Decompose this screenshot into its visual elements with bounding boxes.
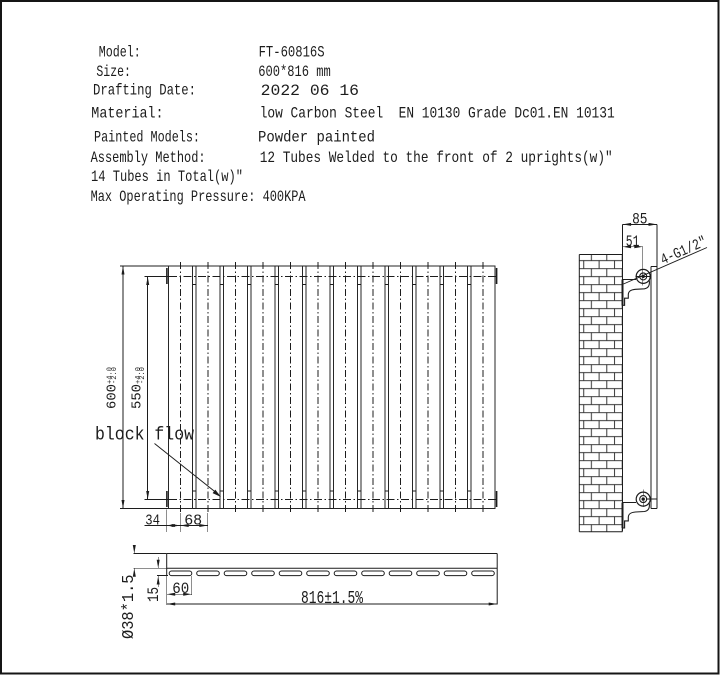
svg-text:low Carbon Steel EN 10130 Gra: low Carbon Steel EN 10130 Grade Dc01.EN … [260, 104, 615, 122]
svg-text:60: 60 [172, 580, 189, 598]
svg-text:14 Tubes in Total(w)″: 14 Tubes in Total(w)″ [91, 168, 243, 186]
svg-text:block flow: block flow [95, 425, 194, 446]
svg-text:68: 68 [184, 513, 202, 530]
svg-text:-2.0: -2.0 [139, 367, 147, 384]
svg-text:Ø38*1.5: Ø38*1.5 [120, 575, 139, 640]
svg-text:550: 550 [131, 384, 146, 409]
svg-text:Powder painted: Powder painted [258, 128, 375, 146]
svg-text:85: 85 [632, 211, 647, 229]
svg-text:51: 51 [626, 233, 640, 251]
svg-text:12 Tubes Welded to the front o: 12 Tubes Welded to the front of 2 uprigh… [260, 149, 613, 167]
svg-text:Drafting Date:: Drafting Date: [93, 82, 196, 100]
svg-text:34: 34 [145, 513, 160, 530]
svg-text:-2.0: -2.0 [111, 367, 119, 384]
svg-text:Painted Models:: Painted Models: [94, 128, 200, 146]
svg-text:15: 15 [145, 587, 163, 602]
svg-text:Size:: Size: [96, 63, 130, 81]
svg-text:600: 600 [106, 384, 121, 409]
svg-text:Material:: Material: [91, 104, 163, 122]
svg-text:2022 06 16: 2022 06 16 [261, 82, 359, 100]
svg-text:816±1.5%: 816±1.5% [301, 588, 364, 609]
svg-text:Assembly Method:: Assembly Method: [91, 149, 206, 167]
svg-text:FT-60816S: FT-60816S [259, 44, 325, 62]
svg-text:Max Operating Pressure: 400KPA: Max Operating Pressure: 400KPA [91, 188, 306, 206]
svg-text:Model:: Model: [99, 44, 141, 62]
svg-text:600*816 mm: 600*816 mm [258, 63, 331, 81]
